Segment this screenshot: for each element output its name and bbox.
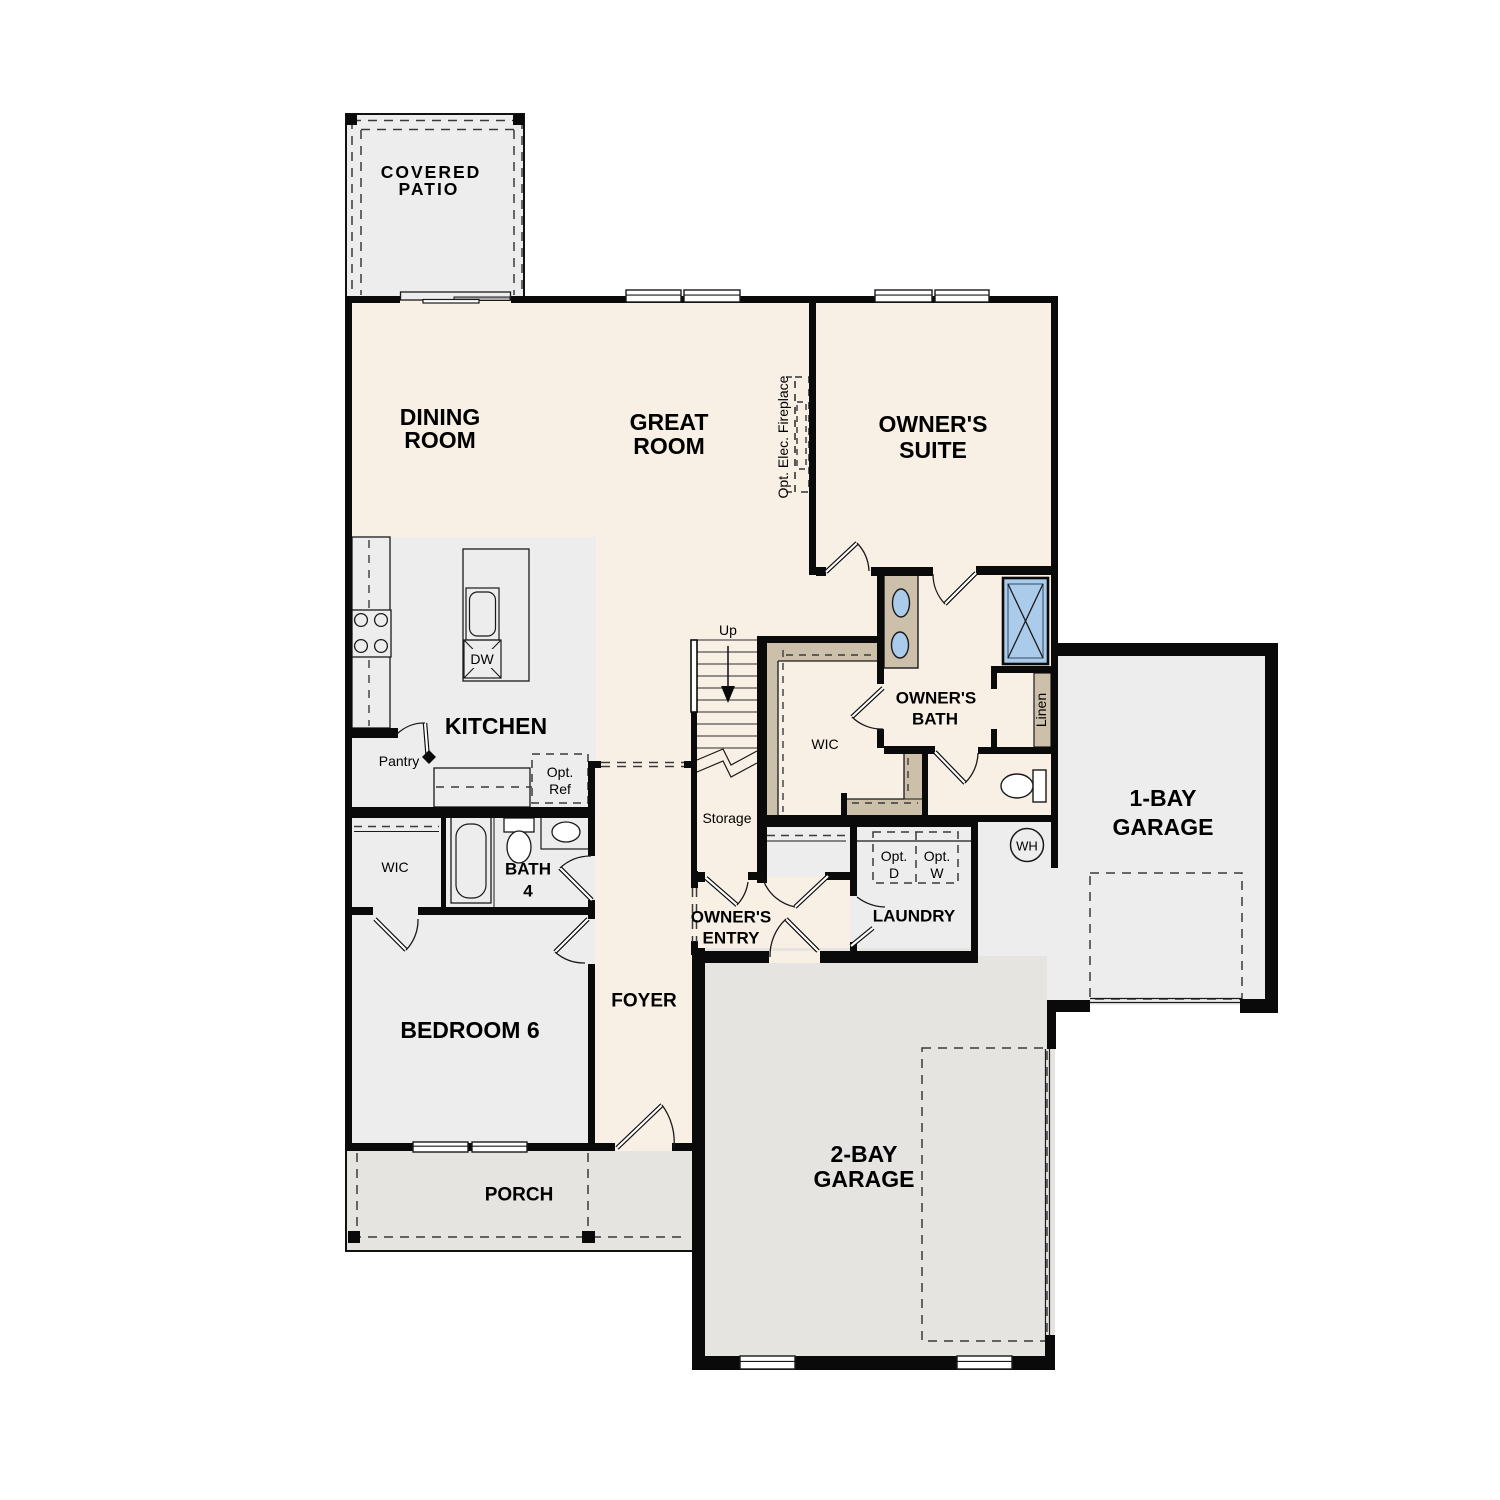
svg-text:OWNER'S: OWNER'S xyxy=(896,689,977,708)
svg-text:Storage: Storage xyxy=(702,810,751,826)
svg-text:2-BAY: 2-BAY xyxy=(831,1141,898,1167)
svg-text:KITCHEN: KITCHEN xyxy=(445,713,547,739)
svg-text:BATH: BATH xyxy=(505,860,551,879)
svg-text:Linen: Linen xyxy=(1033,693,1049,727)
svg-text:WH: WH xyxy=(1016,839,1038,854)
svg-text:BEDROOM 6: BEDROOM 6 xyxy=(400,1017,539,1043)
svg-text:ROOM: ROOM xyxy=(633,433,705,459)
svg-text:W: W xyxy=(930,865,944,881)
svg-text:4: 4 xyxy=(523,882,533,901)
svg-text:Opt. Elec. Fireplace: Opt. Elec. Fireplace xyxy=(775,375,791,498)
svg-text:ENTRY: ENTRY xyxy=(703,929,761,948)
svg-text:OWNER'S: OWNER'S xyxy=(691,908,772,927)
svg-text:Opt.: Opt. xyxy=(924,848,950,864)
svg-text:1-BAY: 1-BAY xyxy=(1130,785,1197,811)
svg-text:Up: Up xyxy=(719,622,737,638)
svg-text:SUITE: SUITE xyxy=(899,437,967,463)
svg-text:OWNER'S: OWNER'S xyxy=(879,411,988,437)
svg-text:Opt.: Opt. xyxy=(881,848,907,864)
svg-text:FOYER: FOYER xyxy=(611,991,677,1012)
svg-text:WIC: WIC xyxy=(381,859,408,875)
svg-text:PATIO: PATIO xyxy=(399,179,460,199)
svg-text:D: D xyxy=(889,865,899,881)
svg-text:Pantry: Pantry xyxy=(379,753,419,769)
svg-text:PORCH: PORCH xyxy=(485,1185,554,1206)
svg-text:BATH: BATH xyxy=(912,710,958,729)
svg-text:DW: DW xyxy=(470,651,494,667)
svg-text:Ref: Ref xyxy=(549,781,571,797)
svg-text:LAUNDRY: LAUNDRY xyxy=(873,907,956,926)
svg-text:GARAGE: GARAGE xyxy=(1113,814,1214,840)
svg-text:ROOM: ROOM xyxy=(404,427,476,453)
svg-text:WIC: WIC xyxy=(811,736,838,752)
svg-text:Opt.: Opt. xyxy=(547,764,573,780)
svg-text:GARAGE: GARAGE xyxy=(814,1166,915,1192)
svg-text:GREAT: GREAT xyxy=(630,409,709,435)
